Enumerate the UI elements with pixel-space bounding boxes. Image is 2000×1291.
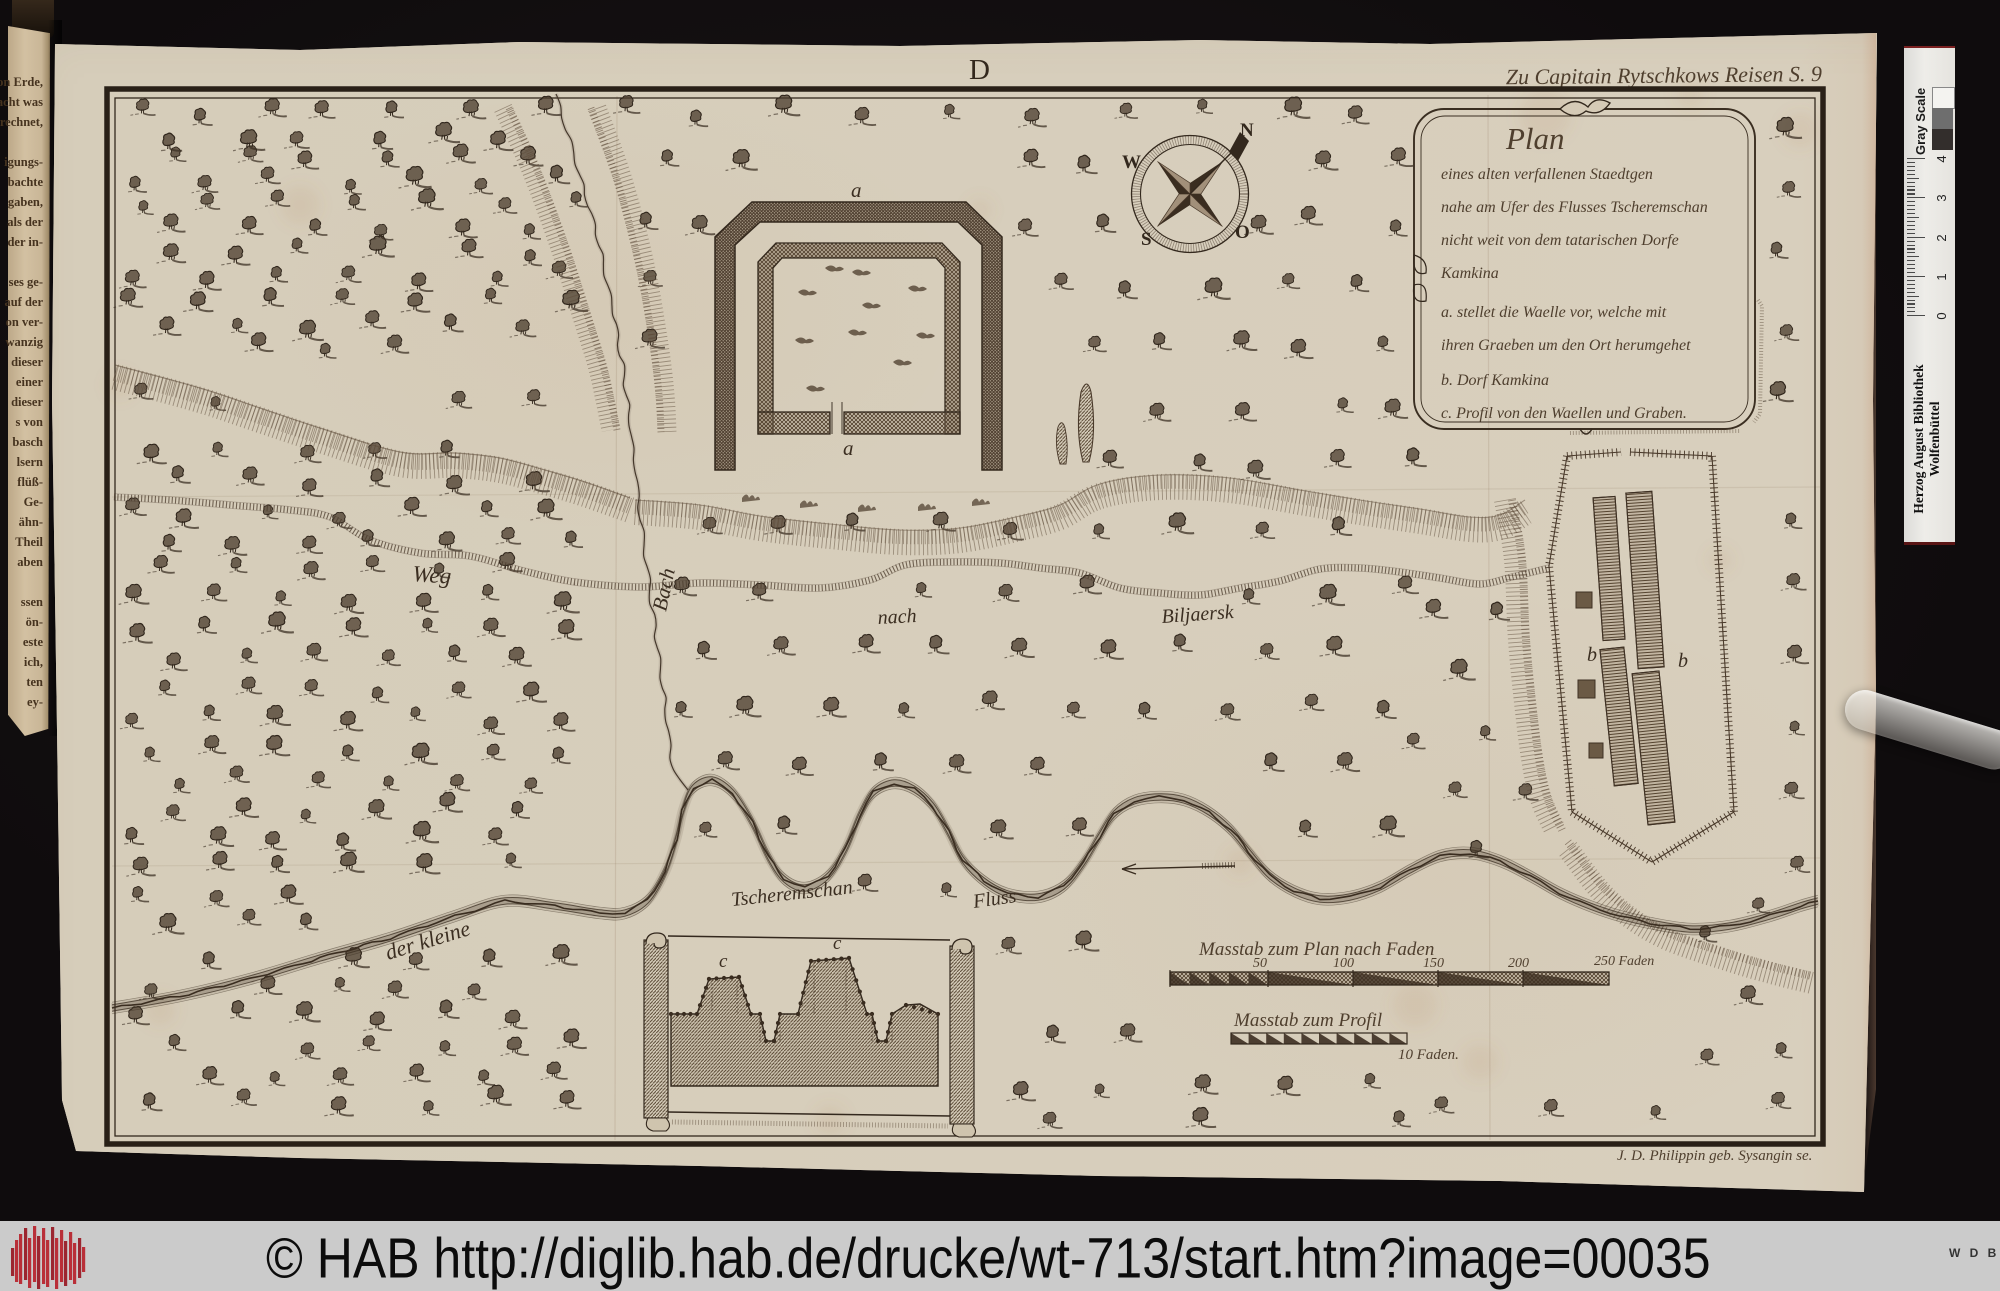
svg-text:a. stellet die Waelle vor, wel: a. stellet die Waelle vor, welche mit [1441,304,1667,321]
svg-text:a: a [851,178,862,202]
svg-text:Kamkina: Kamkina [1440,265,1499,282]
svg-text:Masstab zum Plan nach Faden: Masstab zum Plan nach Faden [1198,939,1434,960]
svg-text:Plan: Plan [1505,121,1565,156]
svg-text:nicht weit von dem tatarischen: nicht weit von dem tatarischen Dorfe [1441,232,1679,249]
svg-text:O: O [1235,222,1250,243]
svg-text:c: c [833,933,842,954]
svg-text:10 Faden.: 10 Faden. [1398,1047,1459,1063]
svg-text:b: b [1678,650,1688,672]
svg-text:c. Profil von den Waellen und: c. Profil von den Waellen und Graben. [1441,405,1687,422]
svg-text:N: N [1240,120,1254,141]
svg-text:Bach: Bach [647,566,679,613]
svg-text:Biljaersk: Biljaersk [1161,601,1236,628]
svg-text:eines alten verfallenen Staedt: eines alten verfallenen Staedtgen [1441,166,1653,183]
svg-text:Fluss: Fluss [971,885,1018,913]
svg-text:Masstab zum Profil: Masstab zum Profil [1233,1010,1382,1031]
svg-text:250 Faden: 250 Faden [1594,954,1654,969]
svg-text:100: 100 [1333,956,1354,971]
svg-text:a: a [843,436,854,460]
svg-text:Zu Capitain Rytschkows Reisen: Zu Capitain Rytschkows Reisen S. 9 [1506,61,1822,89]
svg-text:D: D [969,54,990,86]
svg-text:b: b [1587,644,1597,666]
svg-text:Weg: Weg [412,561,452,589]
svg-text:200: 200 [1508,956,1529,971]
svg-text:c: c [719,951,728,972]
svg-text:nach: nach [877,605,917,629]
svg-text:50: 50 [1253,956,1267,971]
svg-text:b. Dorf Kamkina: b. Dorf Kamkina [1441,372,1549,389]
svg-text:J. D. Philippin geb. Sysangin: J. D. Philippin geb. Sysangin se. [1617,1148,1812,1164]
svg-text:W: W [1122,152,1141,173]
svg-text:nahe am Ufer des Flusses Tsche: nahe am Ufer des Flusses Tscheremschan [1441,199,1708,216]
svg-text:S: S [1141,229,1152,250]
svg-text:150: 150 [1423,956,1444,971]
svg-text:ihren Graeben um den Ort herum: ihren Graeben um den Ort herumgehet [1441,337,1691,354]
